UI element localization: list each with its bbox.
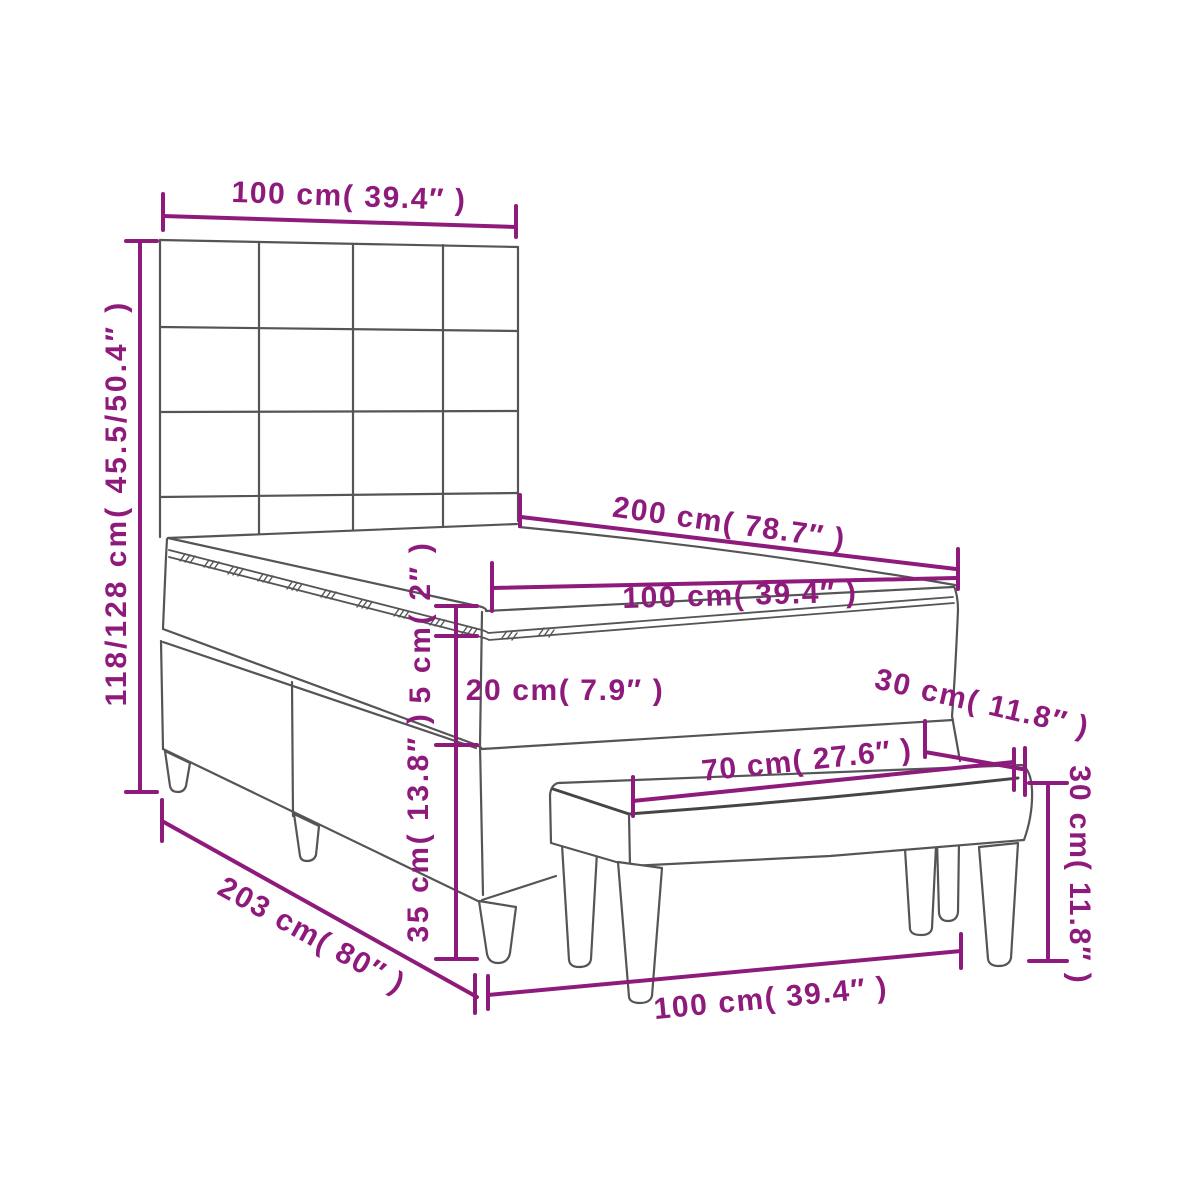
svg-text:5 cm( 2″ ): 5 cm( 2″ ) (404, 540, 437, 703)
svg-text:100 cm( 39.4″ ): 100 cm( 39.4″ ) (622, 576, 858, 615)
svg-text:100 cm( 39.4″ ): 100 cm( 39.4″ ) (231, 176, 467, 217)
svg-text:100 cm( 39.4″ ): 100 cm( 39.4″ ) (652, 971, 889, 1026)
svg-text:20 cm( 7.9″ ): 20 cm( 7.9″ ) (466, 674, 665, 707)
svg-text:35 cm( 13.8″ ): 35 cm( 13.8″ ) (402, 712, 435, 943)
svg-text:30 cm( 11.8″ ): 30 cm( 11.8″ ) (1063, 765, 1096, 984)
svg-text:118/128 cm( 45.5/50.4″ ): 118/128 cm( 45.5/50.4″ ) (100, 300, 133, 707)
svg-text:203 cm( 80″ ): 203 cm( 80″ ) (212, 871, 411, 1001)
